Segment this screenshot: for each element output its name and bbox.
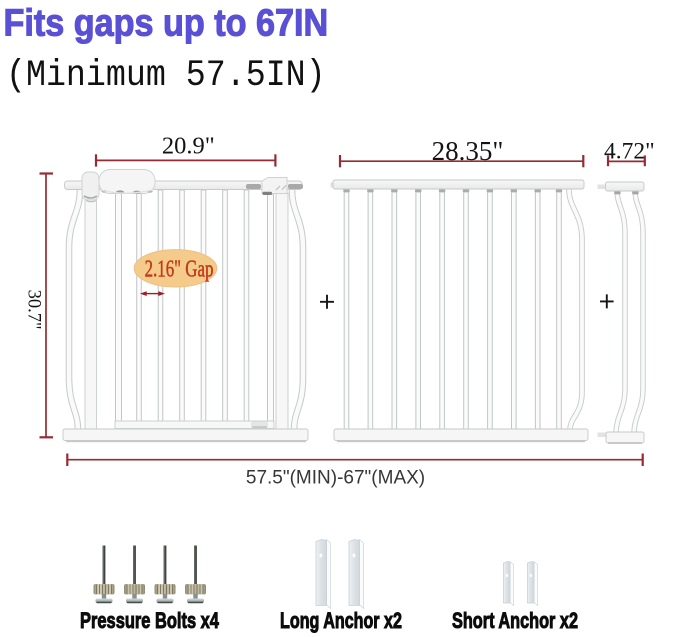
svg-text:Long Anchor x2: Long Anchor x2 [280,610,402,634]
svg-text:20.9": 20.9" [162,133,215,160]
svg-text:30.7": 30.7" [24,290,44,330]
svg-text:2.16" Gap: 2.16" Gap [145,254,214,282]
svg-text:28.35": 28.35" [432,136,504,166]
svg-text:(Minimum 57.5IN): (Minimum 57.5IN) [6,55,326,97]
svg-text:Short Anchor x2: Short Anchor x2 [452,609,578,634]
svg-text:57.5"(MIN)-67"(MAX): 57.5"(MIN)-67"(MAX) [246,468,425,489]
svg-text:4.72": 4.72" [604,138,655,164]
svg-text:Pressure Bolts x4: Pressure Bolts x4 [80,609,219,634]
svg-text:Fits gaps up to 67IN: Fits gaps up to 67IN [4,1,329,44]
